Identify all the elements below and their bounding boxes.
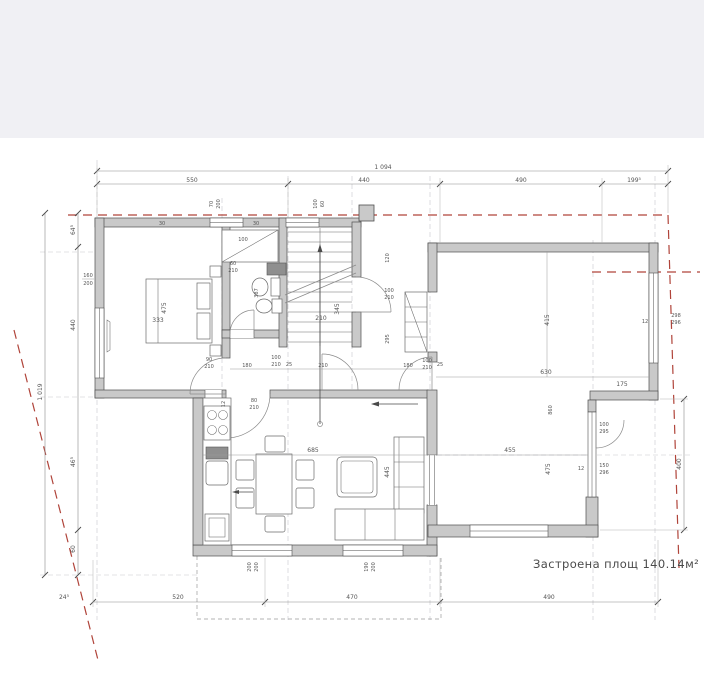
dim-label: 200	[216, 199, 222, 209]
dim-label: 60	[320, 201, 326, 207]
bath-sink	[256, 299, 272, 313]
chair	[296, 460, 314, 480]
dim-label: 160	[83, 273, 93, 279]
toilet-tank	[271, 278, 280, 296]
chair	[296, 488, 314, 508]
kitchen-sink	[206, 461, 228, 485]
dim-label: 210	[384, 295, 394, 301]
dim-label: 550	[186, 177, 198, 184]
dim-label: 64⁵	[70, 224, 77, 235]
dim-label: 630	[540, 369, 552, 376]
sink-counter	[272, 299, 282, 313]
kitchen-sink-unit	[206, 447, 228, 459]
dim-label: 298	[671, 313, 681, 319]
sofa	[394, 437, 424, 513]
chair	[265, 436, 285, 452]
dim-label: 100	[599, 422, 609, 428]
dim-label: 90	[206, 357, 212, 363]
dim-label: 295	[385, 334, 391, 344]
dim-label: 70	[209, 201, 215, 207]
dim-label: 150	[599, 463, 609, 469]
dim-label: 24⁵	[59, 594, 70, 601]
dim-label: 333	[152, 317, 164, 324]
floor-plan-page: 1 094 550 440 490 199⁵ 1 019 64⁵ 440 46⁵…	[0, 0, 704, 699]
dim-label: 210	[422, 365, 432, 371]
dim-label: 440	[358, 177, 370, 184]
dim-label: 400	[676, 458, 683, 470]
dim-label: 200	[247, 562, 253, 572]
dim-label: 199⁵	[627, 177, 641, 184]
dim-label: 387	[254, 288, 260, 298]
dim-label: 12	[642, 319, 648, 325]
chair	[265, 516, 285, 532]
pillow	[197, 283, 210, 309]
dim-label: 12	[578, 466, 584, 472]
area-label: Застроена площ 140.14м²	[533, 557, 699, 571]
dim-label: 25	[437, 362, 443, 368]
dim-label: 100	[384, 288, 394, 294]
dim-label: 80	[251, 398, 257, 404]
dim-label: 470	[346, 594, 358, 601]
top-gray-band	[0, 0, 704, 138]
dim-label: 1 094	[374, 164, 391, 171]
dim-label: 490	[515, 177, 527, 184]
chair	[236, 460, 254, 480]
dim-label: 415	[544, 314, 551, 326]
porch-column	[359, 205, 374, 221]
nightstand	[210, 266, 221, 277]
pillow	[197, 313, 210, 339]
dim-label: 685	[307, 447, 319, 454]
dim-label: 180	[403, 363, 413, 369]
dim-label: 445	[384, 466, 391, 478]
dim-label: 60	[230, 261, 236, 267]
dim-label: 210	[315, 315, 327, 322]
dim-label: 860	[548, 405, 554, 415]
dim-label: 295	[599, 429, 609, 435]
dim-label: 100	[422, 358, 432, 364]
bath-cabinet	[267, 263, 286, 275]
dim-label: 30	[253, 221, 259, 227]
floor-plan-canvas: 1 094 550 440 490 199⁵ 1 019 64⁵ 440 46⁵…	[0, 0, 704, 699]
dim-label: 100	[313, 199, 319, 209]
dim-label: 475	[545, 463, 552, 475]
dim-label: 190	[364, 562, 370, 572]
dim-label: 120	[385, 253, 391, 263]
dim-label: 200	[371, 562, 377, 572]
dim-label: 490	[543, 594, 555, 601]
dim-label: 455	[504, 447, 516, 454]
dim-label: 210	[228, 268, 238, 274]
dim-label: 25	[286, 362, 292, 368]
dim-label: 200	[254, 562, 260, 572]
dim-label: 200	[83, 281, 93, 287]
coffee-table	[337, 457, 377, 497]
dim-label: 175	[616, 381, 628, 388]
dining-table	[256, 454, 292, 514]
dim-label: 100	[271, 355, 281, 361]
dim-label: 46⁵	[70, 456, 77, 467]
dim-label: 210	[249, 405, 259, 411]
dim-label: 440	[70, 319, 77, 331]
dim-label: 60	[70, 545, 77, 553]
dim-label: 520	[172, 594, 184, 601]
dim-label: 210	[271, 362, 281, 368]
dim-label: 296	[671, 320, 681, 326]
dim-label: 475	[161, 302, 168, 314]
dim-label: 30	[159, 221, 165, 227]
dim-label: 12	[221, 401, 227, 407]
dim-label: 1 019	[37, 383, 44, 400]
nightstand	[210, 345, 221, 356]
sofa-chaise	[335, 509, 424, 540]
dim-label: 100	[238, 237, 248, 243]
dim-label: 180	[242, 363, 252, 369]
dim-label: 296	[599, 470, 609, 476]
dim-label: 345	[334, 303, 341, 315]
dim-label: 210	[204, 364, 214, 370]
dim-label: 210	[318, 363, 328, 369]
stove	[204, 406, 230, 440]
